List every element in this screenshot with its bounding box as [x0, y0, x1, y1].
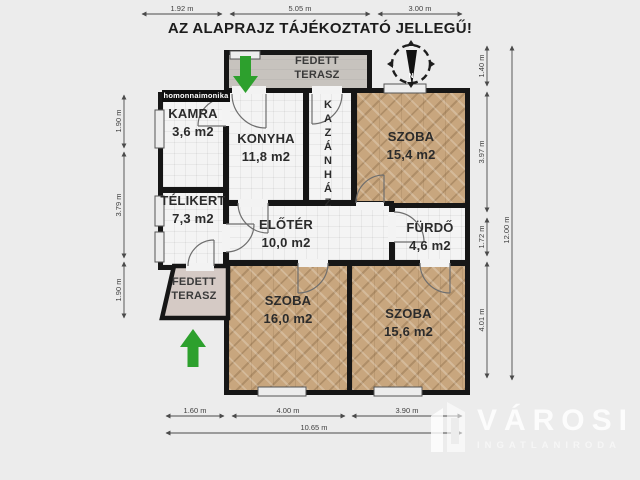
svg-text:1.60 m: 1.60 m: [184, 406, 207, 415]
label-bedroom-sw: SZOBA 16,0 m2: [224, 292, 352, 327]
photographer-watermark: homonnaimonika: [162, 90, 230, 102]
label-bathroom: FÜRDŐ 4,6 m2: [394, 219, 466, 254]
agency-building-icon: [429, 402, 467, 452]
svg-text:1.40 m: 1.40 m: [477, 55, 486, 78]
label-covered-terrace-bottom: FEDETT TERASZ: [164, 276, 224, 304]
svg-text:N: N: [408, 73, 413, 80]
svg-text:4.01 m: 4.01 m: [477, 309, 486, 332]
agency-subtitle: INGATLANIRODA: [477, 440, 634, 451]
svg-text:3.97 m: 3.97 m: [477, 141, 486, 164]
room-bedroom-sw: [224, 261, 352, 395]
label-bedroom-se: SZOBA 15,6 m2: [347, 305, 470, 340]
svg-text:3.90 m: 3.90 m: [396, 406, 419, 415]
label-kitchen: KONYHA 11,8 m2: [224, 130, 308, 165]
svg-text:1.92 m: 1.92 m: [171, 4, 194, 13]
label-bedroom-ne: SZOBA 15,4 m2: [352, 128, 470, 163]
label-hall: ELŐTÉR 10,0 m2: [230, 216, 342, 251]
svg-text:4.00 m: 4.00 m: [277, 406, 300, 415]
svg-text:1.72 m: 1.72 m: [477, 226, 486, 249]
agency-logo: VÁROSI INGATLANIRODA: [429, 402, 634, 452]
plan-disclaimer-title: AZ ALAPRAJZ TÁJÉKOZTATÓ JELLEGŰ!: [110, 20, 530, 37]
label-pantry: KAMRA 3,6 m2: [160, 105, 226, 140]
label-boiler-room: KAZÁNHÁZ: [322, 99, 334, 199]
label-covered-terrace-top: FEDETT TERASZ: [272, 55, 362, 83]
svg-text:10.65 m: 10.65 m: [300, 423, 327, 432]
compass-icon: N: [387, 40, 435, 88]
agency-name: VÁROSI: [477, 404, 634, 438]
svg-text:1.90 m: 1.90 m: [114, 110, 123, 133]
entry-arrow-up-icon: [180, 329, 206, 367]
svg-text:3.00 m: 3.00 m: [409, 4, 432, 13]
svg-text:5.05 m: 5.05 m: [289, 4, 312, 13]
svg-text:12.00 m: 12.00 m: [502, 216, 511, 243]
svg-text:3.79 m: 3.79 m: [114, 194, 123, 217]
svg-text:1.90 m: 1.90 m: [114, 279, 123, 302]
label-winter-garden: TÉLIKERT 7,3 m2: [156, 192, 230, 227]
floorplan-canvas: AZ ALAPRAJZ TÁJÉKOZTATÓ JELLEGŰ!: [0, 0, 640, 480]
